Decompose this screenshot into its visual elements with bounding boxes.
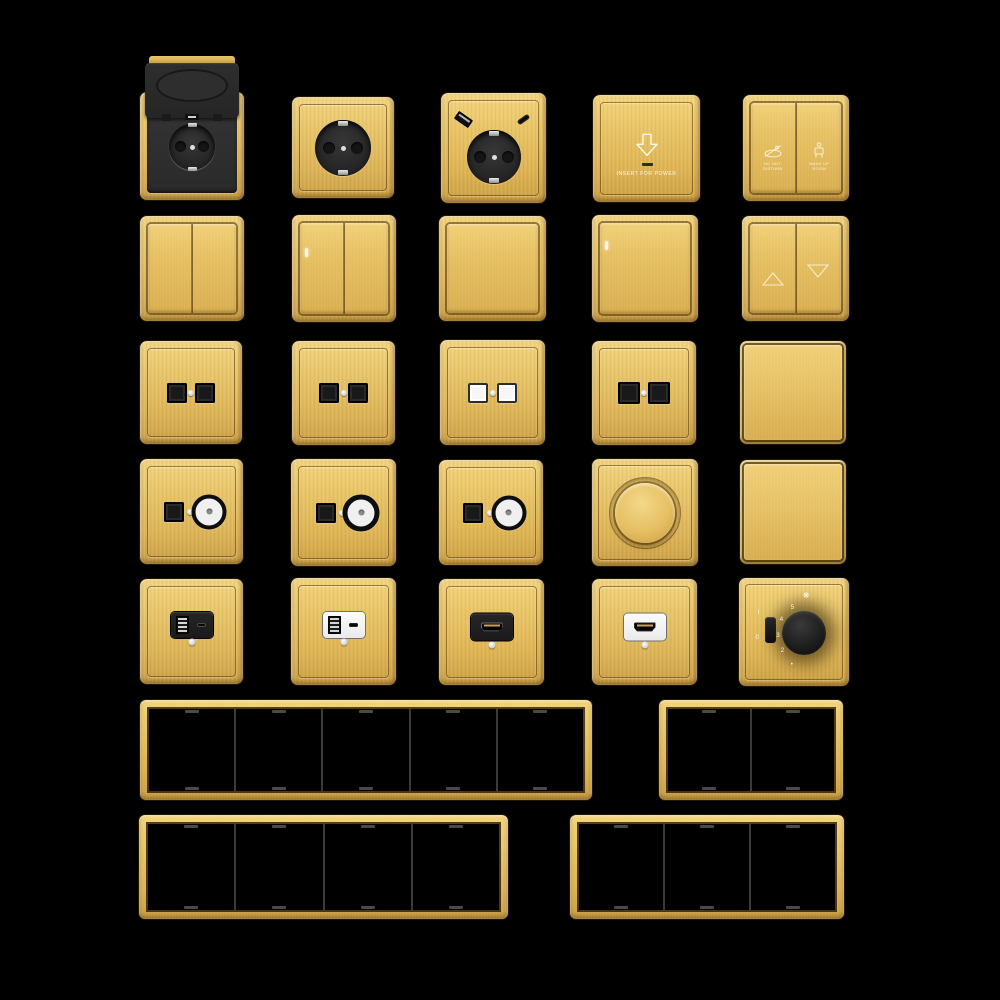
socket-pin-hole [323, 142, 335, 154]
data-socket-double-black-b [292, 341, 395, 445]
frame-gang-opening [411, 824, 499, 910]
socket-pin-hole [198, 141, 209, 152]
usb-charger-white [291, 578, 396, 685]
frame-gang-opening [409, 709, 496, 791]
coax-connector [192, 494, 227, 529]
scale-number: 3 [776, 633, 779, 639]
data-port [618, 382, 640, 404]
frame-gang-opening [321, 709, 408, 791]
frame-gang-opening [663, 824, 749, 910]
socket-schuko [292, 97, 394, 198]
module-screw [340, 639, 347, 646]
usb-a-port [328, 616, 341, 634]
product-collage: INSERT FOR POWER DO NOTDISTURB MAKE UPRO… [0, 0, 1000, 1000]
hdmi-module [471, 613, 513, 640]
hdmi-socket-white [592, 579, 697, 685]
rocker [600, 223, 690, 314]
keycard-power-switch: INSERT FOR POWER [593, 95, 700, 202]
make-up-room-icon [811, 142, 827, 159]
socket-screw [190, 145, 195, 150]
data-socket-double-white [440, 340, 545, 445]
data-port [463, 503, 483, 523]
usb-c-port [197, 623, 206, 627]
blank-plate-a [740, 341, 846, 444]
tv-data-socket-c [439, 460, 543, 565]
data-port [648, 382, 670, 404]
switch-2-gang-led [292, 215, 396, 322]
socket-schuko-usb [441, 93, 546, 203]
frame-interior [148, 824, 499, 910]
coax-connector [343, 494, 380, 531]
dimmer-knob [615, 483, 675, 543]
center-screw [490, 390, 496, 396]
module-screw [188, 639, 195, 646]
data-port [319, 383, 339, 403]
scale-dot: • [791, 662, 793, 668]
scale-number: 4 [780, 617, 783, 623]
led-indicator [605, 241, 608, 250]
rocker-divider [191, 224, 193, 313]
ground-clip [338, 170, 348, 175]
ground-clip [489, 178, 499, 183]
frame-interior [149, 709, 583, 791]
hotel-service-panel: DO NOTDISTURB MAKE UPROOM [743, 95, 849, 201]
module-screw [641, 641, 648, 648]
do-not-disturb-icon [762, 144, 784, 159]
usb-a-port [176, 616, 189, 634]
switch-2-gang [140, 216, 244, 321]
curtain-switch [742, 216, 849, 321]
blank-plate-b [740, 460, 846, 564]
usb-c-port [349, 623, 358, 627]
socket-pin-hole [175, 141, 186, 152]
fan-speed-controller: I 0 ❋ 5 4 3 2 • [739, 578, 849, 686]
dnd-label: DO NOTDISTURB [753, 161, 793, 171]
scale-number: 2 [781, 648, 784, 654]
frame-gang-opening [496, 709, 583, 791]
schuko-socket-face [169, 124, 215, 170]
coax-connector [491, 495, 526, 530]
toggle-off-label: 0 [756, 635, 759, 641]
frame-2-gang [659, 700, 843, 800]
frame-gang-opening [234, 824, 322, 910]
fan-icon: ❋ [803, 591, 810, 600]
rocker-divider [795, 224, 797, 313]
data-port [195, 383, 215, 403]
hdmi-socket-black [439, 579, 544, 685]
data-socket-double-black-a [140, 341, 242, 444]
center-screw [641, 390, 647, 396]
up-triangle-icon [761, 271, 785, 287]
arrow-down-icon [633, 132, 661, 158]
flip-cover [145, 63, 239, 118]
hdmi-port [481, 622, 503, 631]
data-port [497, 383, 517, 403]
data-port [348, 383, 368, 403]
ground-clip [338, 121, 348, 126]
socket-pin-hole [474, 151, 486, 163]
frame-gang-opening [149, 709, 234, 791]
frame-interior [579, 824, 835, 910]
socket-pin-hole [351, 142, 363, 154]
frame-3-gang [570, 815, 844, 919]
data-port [164, 502, 184, 522]
frame-5-gang [140, 700, 592, 800]
frame-4-gang [139, 815, 508, 919]
led-indicator [305, 248, 308, 257]
frame-gang-opening [323, 824, 411, 910]
frame-gang-opening [750, 709, 834, 791]
keycard-label: INSERT FOR POWER [593, 171, 700, 177]
fan-knob [782, 611, 826, 655]
mur-label: MAKE UPROOM [799, 161, 839, 171]
scale-number: 5 [791, 605, 794, 611]
socket-screw [341, 146, 346, 151]
usb-module [171, 612, 213, 638]
frame-interior [668, 709, 834, 791]
switch-1-gang-led [592, 215, 698, 322]
frame-gang-opening [234, 709, 321, 791]
blank-face [744, 464, 842, 560]
down-triangle-icon [806, 263, 830, 279]
hdmi-module [624, 613, 666, 640]
data-port [468, 383, 488, 403]
schuko-socket-face [315, 120, 371, 176]
center-screw [188, 390, 194, 396]
frame-gang-opening [668, 709, 750, 791]
center-screw [341, 390, 347, 396]
ground-clip [188, 123, 197, 127]
hdmi-port [634, 622, 656, 631]
cover-hinge [162, 114, 171, 121]
rocker-divider [343, 223, 345, 314]
button-divider [795, 103, 797, 193]
switch-1-gang [439, 216, 546, 321]
rotary-dimmer [592, 459, 698, 566]
flip-cover-recess [156, 69, 228, 102]
cover-clasp [185, 114, 199, 120]
blank-face [744, 345, 842, 440]
frame-gang-opening [579, 824, 663, 910]
data-port [167, 383, 187, 403]
frame-gang-opening [749, 824, 835, 910]
schuko-socket-face [467, 130, 521, 184]
module-screw [488, 641, 495, 648]
data-port [316, 503, 336, 523]
socket-screw [492, 155, 497, 160]
usb-charger-black [140, 579, 243, 684]
cover-hinge [213, 114, 222, 121]
rocker [447, 224, 538, 313]
toggle-on-label: I [758, 610, 760, 616]
ground-clip [489, 131, 499, 136]
tv-data-socket-a [140, 459, 243, 564]
data-socket-double-black-shuttered [592, 341, 696, 445]
ground-clip [188, 167, 197, 171]
socket-pin-hole [502, 151, 514, 163]
frame-gang-opening [148, 824, 234, 910]
toggle-switch [765, 617, 776, 643]
socket-schuko-flip-cover [140, 92, 244, 200]
usb-module [323, 612, 365, 638]
tv-data-socket-b [291, 459, 396, 566]
